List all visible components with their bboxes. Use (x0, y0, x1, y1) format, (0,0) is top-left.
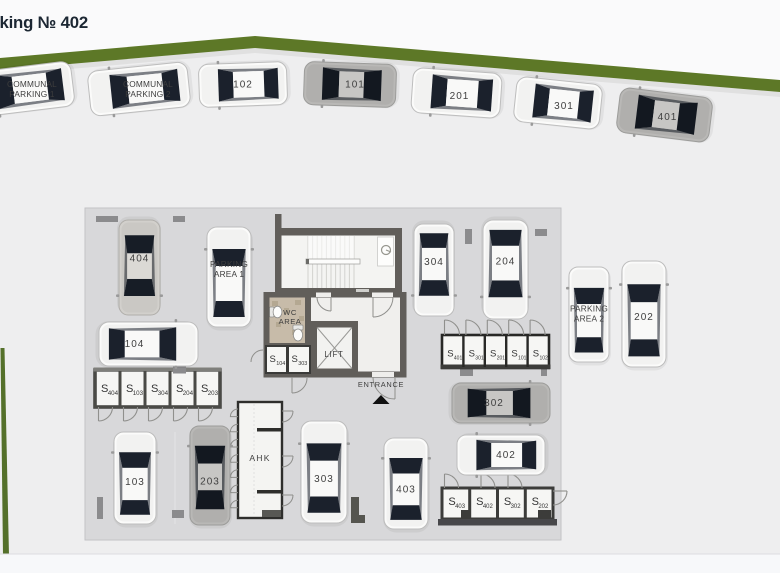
svg-text:204: 204 (496, 257, 516, 268)
svg-text:COMMUNAL: COMMUNAL (7, 79, 57, 89)
svg-text:403: 403 (455, 504, 466, 510)
svg-text:ENTRANCE: ENTRANCE (358, 380, 404, 389)
svg-text:S: S (511, 349, 517, 360)
svg-text:AREA 2: AREA 2 (574, 314, 604, 324)
svg-text:202: 202 (538, 504, 549, 510)
svg-text:WC: WC (283, 308, 297, 317)
svg-text:AREA: AREA (279, 317, 302, 326)
svg-text:PARKING: PARKING (210, 259, 248, 269)
svg-text:204: 204 (183, 390, 194, 397)
svg-text:AREA 1: AREA 1 (214, 269, 244, 279)
svg-text:101: 101 (518, 356, 527, 362)
svg-text:302: 302 (484, 398, 504, 409)
svg-text:201: 201 (497, 356, 506, 362)
svg-text:304: 304 (424, 257, 444, 268)
svg-text:102: 102 (233, 80, 253, 91)
svg-text:Parking № 402: Parking № 402 (0, 13, 88, 32)
svg-text:402: 402 (483, 504, 494, 510)
svg-text:LIFT: LIFT (324, 350, 343, 359)
svg-text:PARKING 2: PARKING 2 (125, 89, 171, 99)
svg-text:203: 203 (200, 477, 220, 488)
svg-text:104: 104 (125, 339, 145, 350)
svg-text:302: 302 (511, 504, 522, 510)
svg-text:PARKING: PARKING (570, 304, 608, 314)
svg-text:S: S (292, 354, 298, 365)
svg-text:S: S (490, 349, 496, 360)
svg-text:S: S (533, 349, 539, 360)
svg-text:PARKING 1: PARKING 1 (9, 89, 55, 99)
svg-text:S: S (469, 349, 475, 360)
svg-text:301: 301 (554, 101, 574, 112)
svg-text:203: 203 (208, 390, 219, 397)
svg-text:103: 103 (133, 390, 144, 397)
svg-text:AHK: AHK (249, 453, 270, 463)
svg-text:401: 401 (454, 356, 463, 362)
svg-text:S: S (447, 349, 453, 360)
svg-text:102: 102 (540, 356, 549, 362)
svg-text:404: 404 (130, 254, 150, 265)
svg-text:202: 202 (634, 312, 654, 323)
svg-text:301: 301 (475, 356, 484, 362)
svg-text:403: 403 (396, 485, 416, 496)
svg-text:404: 404 (108, 390, 119, 397)
svg-text:104: 104 (276, 361, 285, 367)
svg-text:103: 103 (125, 477, 145, 488)
svg-text:S: S (270, 354, 276, 365)
svg-text:303: 303 (314, 474, 334, 485)
svg-text:201: 201 (450, 91, 470, 102)
svg-text:401: 401 (658, 112, 678, 123)
svg-text:COMMUNAL: COMMUNAL (123, 79, 173, 89)
svg-text:402: 402 (496, 450, 516, 461)
svg-text:304: 304 (158, 390, 169, 397)
svg-text:101: 101 (345, 80, 365, 91)
svg-text:303: 303 (298, 361, 307, 367)
